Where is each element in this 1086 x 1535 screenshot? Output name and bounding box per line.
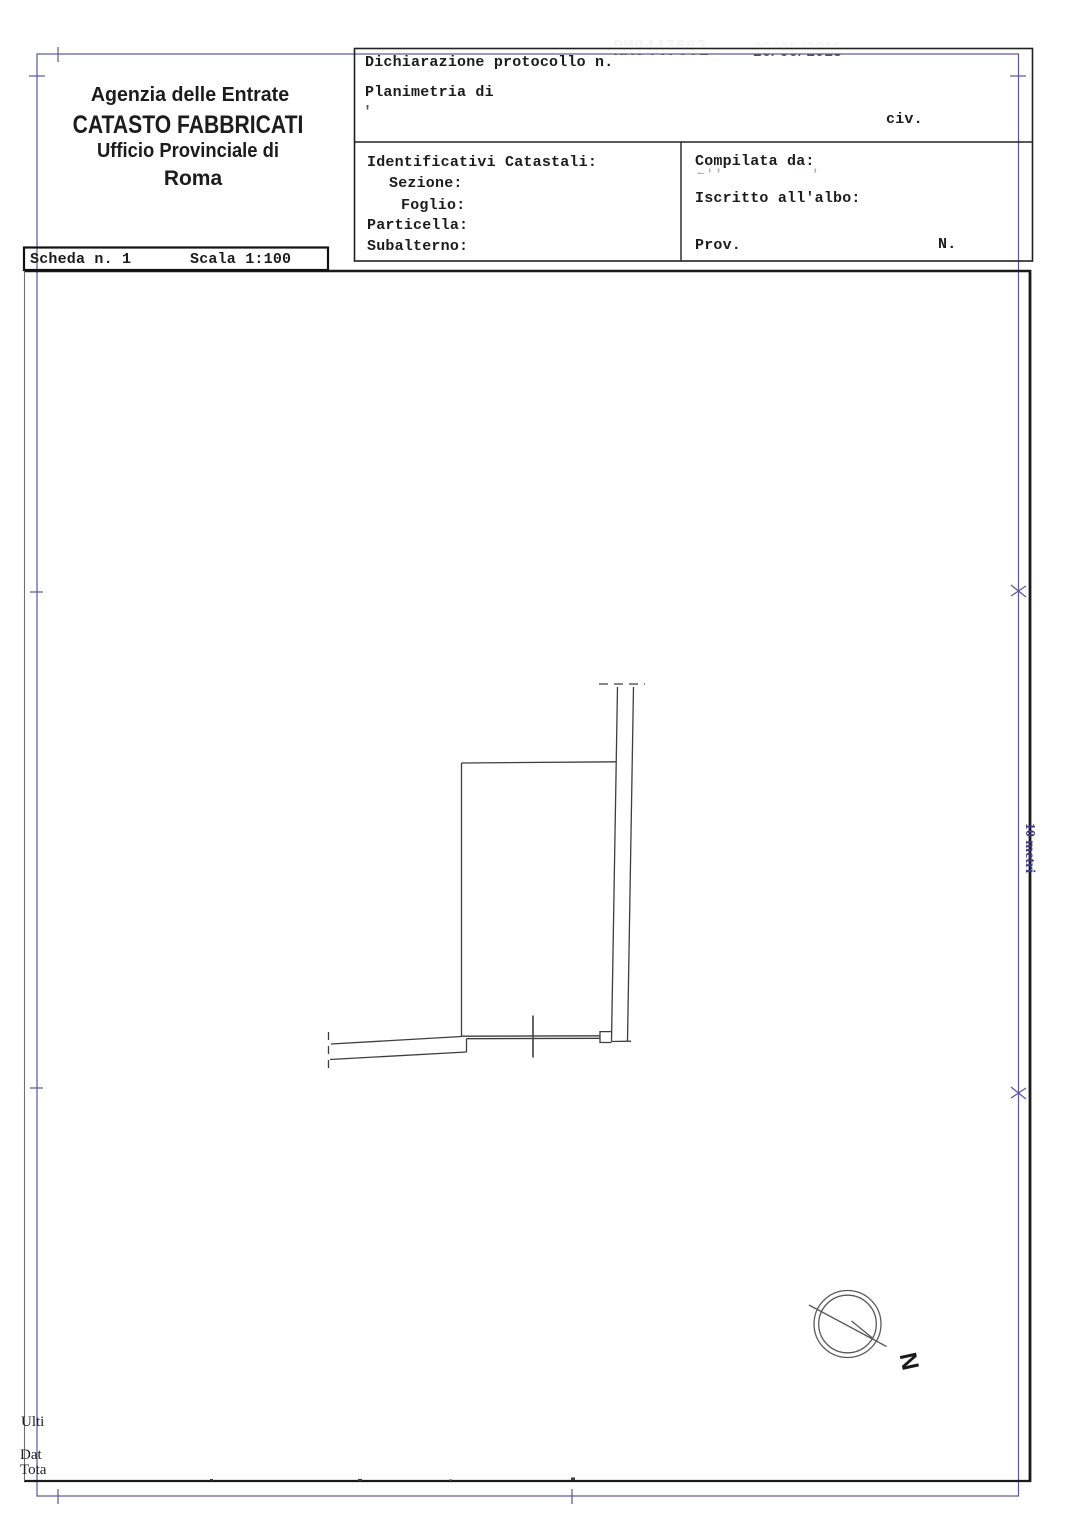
svg-text:N: N xyxy=(894,1350,924,1373)
